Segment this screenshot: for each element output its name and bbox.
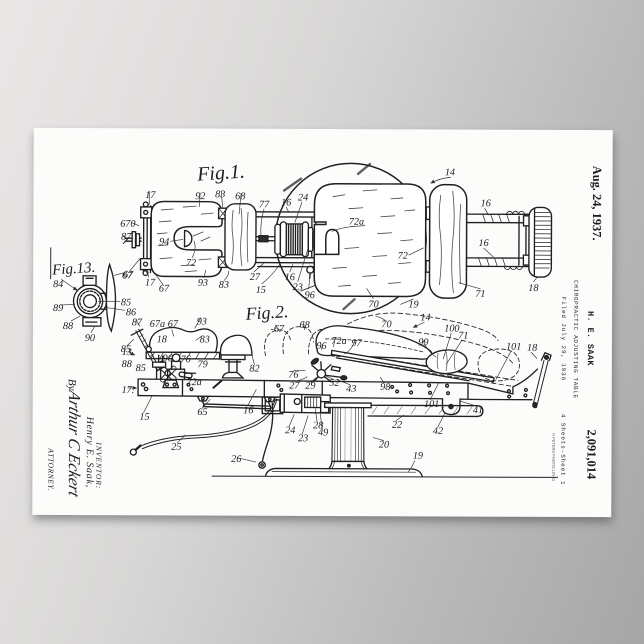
svg-text:18: 18	[157, 334, 167, 345]
svg-text:101: 101	[506, 341, 521, 352]
svg-text:96: 96	[316, 340, 327, 351]
svg-text:88: 88	[63, 320, 73, 331]
svg-text:67: 67	[122, 270, 133, 281]
svg-text:24: 24	[285, 425, 295, 436]
svg-text:23: 23	[298, 433, 308, 444]
svg-text:17.: 17.	[122, 384, 135, 395]
svg-text:90: 90	[163, 353, 173, 364]
svg-text:72: 72	[186, 257, 196, 268]
svg-text:Fig.13.: Fig.13.	[51, 259, 96, 278]
svg-text:Aug. 24, 1937.: Aug. 24, 1937.	[590, 165, 604, 240]
svg-text:96: 96	[305, 290, 316, 301]
svg-text:97: 97	[351, 338, 362, 349]
svg-text:87: 87	[121, 231, 132, 242]
svg-text:2,091,014: 2,091,014	[584, 429, 598, 479]
svg-text:43: 43	[346, 383, 356, 394]
svg-text:71: 71	[458, 330, 468, 341]
svg-text:24: 24	[298, 192, 308, 203]
svg-text:Filed July 29, 1936: Filed July 29, 1936	[560, 296, 567, 380]
svg-text:49: 49	[318, 427, 328, 438]
svg-text:89: 89	[53, 303, 63, 314]
svg-text:72a: 72a	[349, 216, 364, 227]
svg-text:Henry E. Saak,: Henry E. Saak,	[84, 415, 95, 487]
svg-text:76: 76	[181, 354, 192, 365]
svg-text:18: 18	[527, 342, 537, 353]
svg-text:23: 23	[293, 282, 303, 293]
svg-text:16: 16	[285, 272, 296, 283]
svg-text:83: 83	[200, 334, 210, 345]
svg-text:84: 84	[53, 279, 63, 290]
svg-text:16: 16	[481, 198, 492, 209]
svg-text:85: 85	[121, 297, 131, 308]
svg-text:22: 22	[392, 419, 402, 430]
svg-text:14: 14	[445, 167, 455, 178]
svg-text:71: 71	[475, 288, 485, 299]
svg-text:16: 16	[281, 197, 292, 208]
svg-text:83: 83	[219, 279, 229, 290]
svg-text:H. E. SAAK: H. E. SAAK	[585, 311, 595, 366]
svg-text:15: 15	[256, 284, 266, 295]
svg-text:72: 72	[398, 250, 408, 261]
svg-text:92: 92	[195, 191, 205, 202]
svg-text:26: 26	[231, 453, 242, 464]
svg-text:17: 17	[145, 277, 156, 288]
svg-text:670: 670	[120, 218, 135, 229]
svg-text:77: 77	[259, 199, 270, 210]
svg-text:16: 16	[479, 238, 490, 249]
svg-text:94: 94	[159, 236, 169, 247]
svg-text:67: 67	[159, 283, 170, 294]
svg-text:98: 98	[380, 381, 390, 392]
svg-text:101: 101	[424, 398, 439, 409]
svg-text:70: 70	[381, 319, 391, 330]
svg-text:19: 19	[413, 450, 423, 461]
svg-text:16: 16	[243, 405, 254, 416]
svg-text:79: 79	[198, 359, 208, 370]
svg-text:ATTORNEY.: ATTORNEY.	[46, 447, 55, 491]
svg-text:Fig.1.: Fig.1.	[196, 160, 246, 185]
svg-text:65: 65	[197, 407, 207, 418]
svg-text:41: 41	[473, 405, 483, 416]
svg-text:86: 86	[126, 307, 137, 318]
svg-text:90: 90	[85, 332, 95, 343]
svg-text:Arthur C Eckert: Arthur C Eckert	[65, 387, 84, 499]
svg-text:14: 14	[420, 312, 430, 323]
svg-text:25: 25	[171, 441, 181, 452]
svg-text:52: 52	[329, 377, 339, 388]
svg-text:83: 83	[215, 189, 225, 200]
svg-text:20: 20	[379, 439, 389, 450]
svg-text:CHIROPRACTIC ADJUSTING TABLE: CHIROPRACTIC ADJUSTING TABLE	[572, 279, 579, 398]
svg-text:67a: 67a	[150, 318, 165, 329]
svg-text:99: 99	[418, 337, 428, 348]
svg-text:72a: 72a	[186, 377, 201, 388]
svg-text:4 Sheets-Sheet 1: 4 Sheets-Sheet 1	[559, 413, 566, 485]
svg-text:70: 70	[368, 299, 378, 310]
svg-text:17: 17	[145, 189, 156, 200]
svg-text:18: 18	[528, 282, 538, 293]
svg-text:82: 82	[249, 363, 259, 374]
svg-text:42: 42	[433, 425, 443, 436]
svg-text:93: 93	[198, 277, 208, 288]
svg-text:13: 13	[122, 347, 132, 358]
svg-text:88: 88	[122, 359, 132, 370]
svg-text:N PETERS PHOTO-LITHO: N PETERS PHOTO-LITHO	[551, 433, 556, 481]
svg-text:27: 27	[250, 271, 261, 282]
svg-text:Fig.2.: Fig.2.	[244, 301, 289, 324]
svg-text:67: 67	[168, 318, 179, 329]
svg-text:15: 15	[139, 411, 149, 422]
svg-text:85: 85	[136, 363, 146, 374]
